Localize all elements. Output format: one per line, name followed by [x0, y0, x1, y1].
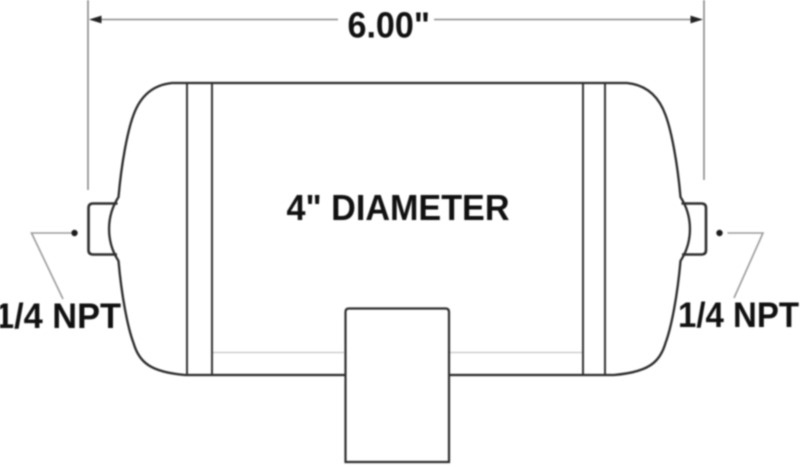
- svg-text:1/4 NPT: 1/4 NPT: [678, 296, 799, 335]
- svg-text:4" DIAMETER: 4" DIAMETER: [287, 187, 510, 228]
- svg-text:6.00": 6.00": [348, 5, 431, 46]
- svg-text:1/4 NPT: 1/4 NPT: [0, 297, 121, 336]
